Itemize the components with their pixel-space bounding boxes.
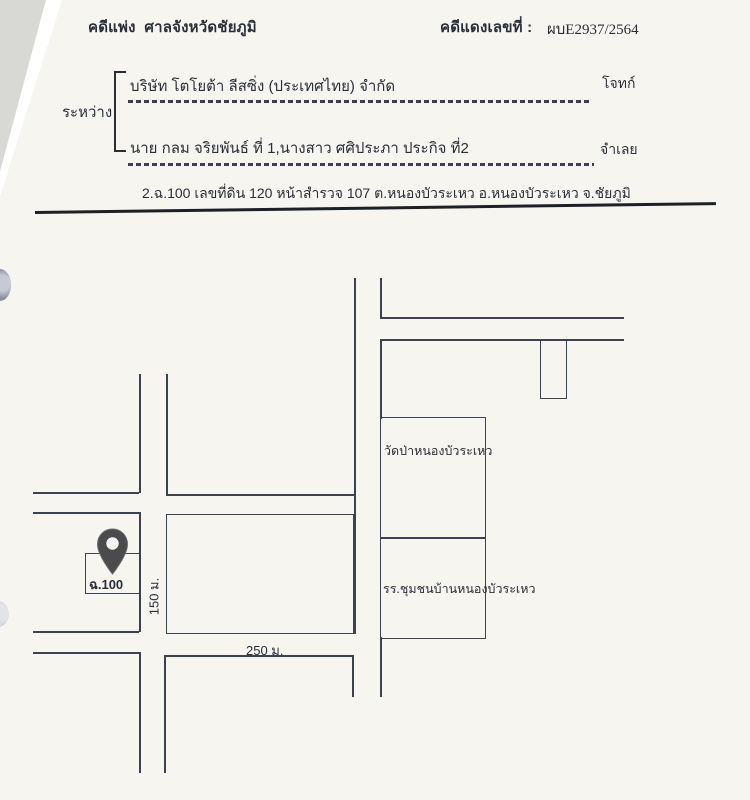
road-line	[33, 492, 139, 494]
red-case-number: ผบE2937/2564	[547, 17, 639, 41]
plaintiff-name: บริษัท โตโยต้า ลีสซิ่ง (ประเทศไทย) จำกัด	[130, 74, 395, 98]
defendant-underline	[128, 163, 594, 166]
temple-block-outline	[380, 417, 486, 539]
road-line	[33, 631, 139, 633]
small-building-outline	[540, 339, 567, 399]
plaintiff-role: โจทก์	[602, 73, 635, 95]
road-line	[166, 494, 356, 496]
road-line	[139, 652, 141, 773]
city-block-outline	[166, 514, 354, 634]
road-line	[380, 278, 382, 318]
hole-punch-mark	[0, 601, 9, 627]
road-line	[166, 374, 168, 494]
defendant-role: จำเลย	[600, 139, 638, 161]
road-line	[139, 374, 141, 493]
road-line	[352, 655, 354, 697]
school-label: รร.ชุมชนบ้านหนองบัวระเหว	[383, 579, 535, 599]
court-name: ศาลจังหวัดชัยภูมิ	[144, 19, 256, 36]
between-label: ระหว่าง	[62, 100, 112, 124]
vertical-distance-label: 150 ม.	[144, 576, 165, 618]
case-type: คดีแพ่ง	[88, 19, 136, 36]
temple-label: วัดป่าหนองบัวระเหว	[384, 441, 492, 461]
road-line	[380, 339, 624, 341]
plaintiff-underline	[128, 100, 592, 103]
road-line	[380, 317, 624, 319]
land-plot-label: ฉ.100	[89, 574, 123, 595]
case-type-and-court-title: คดีแพ่ง ศาลจังหวัดชัยภูมิ	[88, 15, 257, 39]
red-case-label: คดีแดงเลขที่ :	[440, 15, 532, 39]
scanned-document-page: คดีแพ่ง ศาลจังหวัดชัยภูมิ คดีแดงเลขที่ :…	[0, 0, 750, 800]
defendant-name: นาย กลม จริยพันธ์ ที่ 1,นางสาว ศศิประภา …	[130, 136, 469, 160]
road-line	[380, 637, 382, 697]
road-line	[354, 278, 356, 634]
land-description: 2.ฉ.100 เลขที่ดิน 120 หน้าสำรวจ 107 ต.หน…	[142, 183, 631, 205]
road-line	[164, 655, 166, 773]
location-pin-icon	[96, 528, 129, 576]
scan-corner-background	[0, 0, 70, 210]
hole-punch-mark	[0, 269, 11, 301]
parties-bracket	[114, 71, 126, 152]
road-line	[33, 652, 139, 654]
road-line	[33, 512, 139, 514]
horizontal-distance-label: 250 ม.	[246, 640, 283, 661]
road-line	[380, 339, 382, 419]
